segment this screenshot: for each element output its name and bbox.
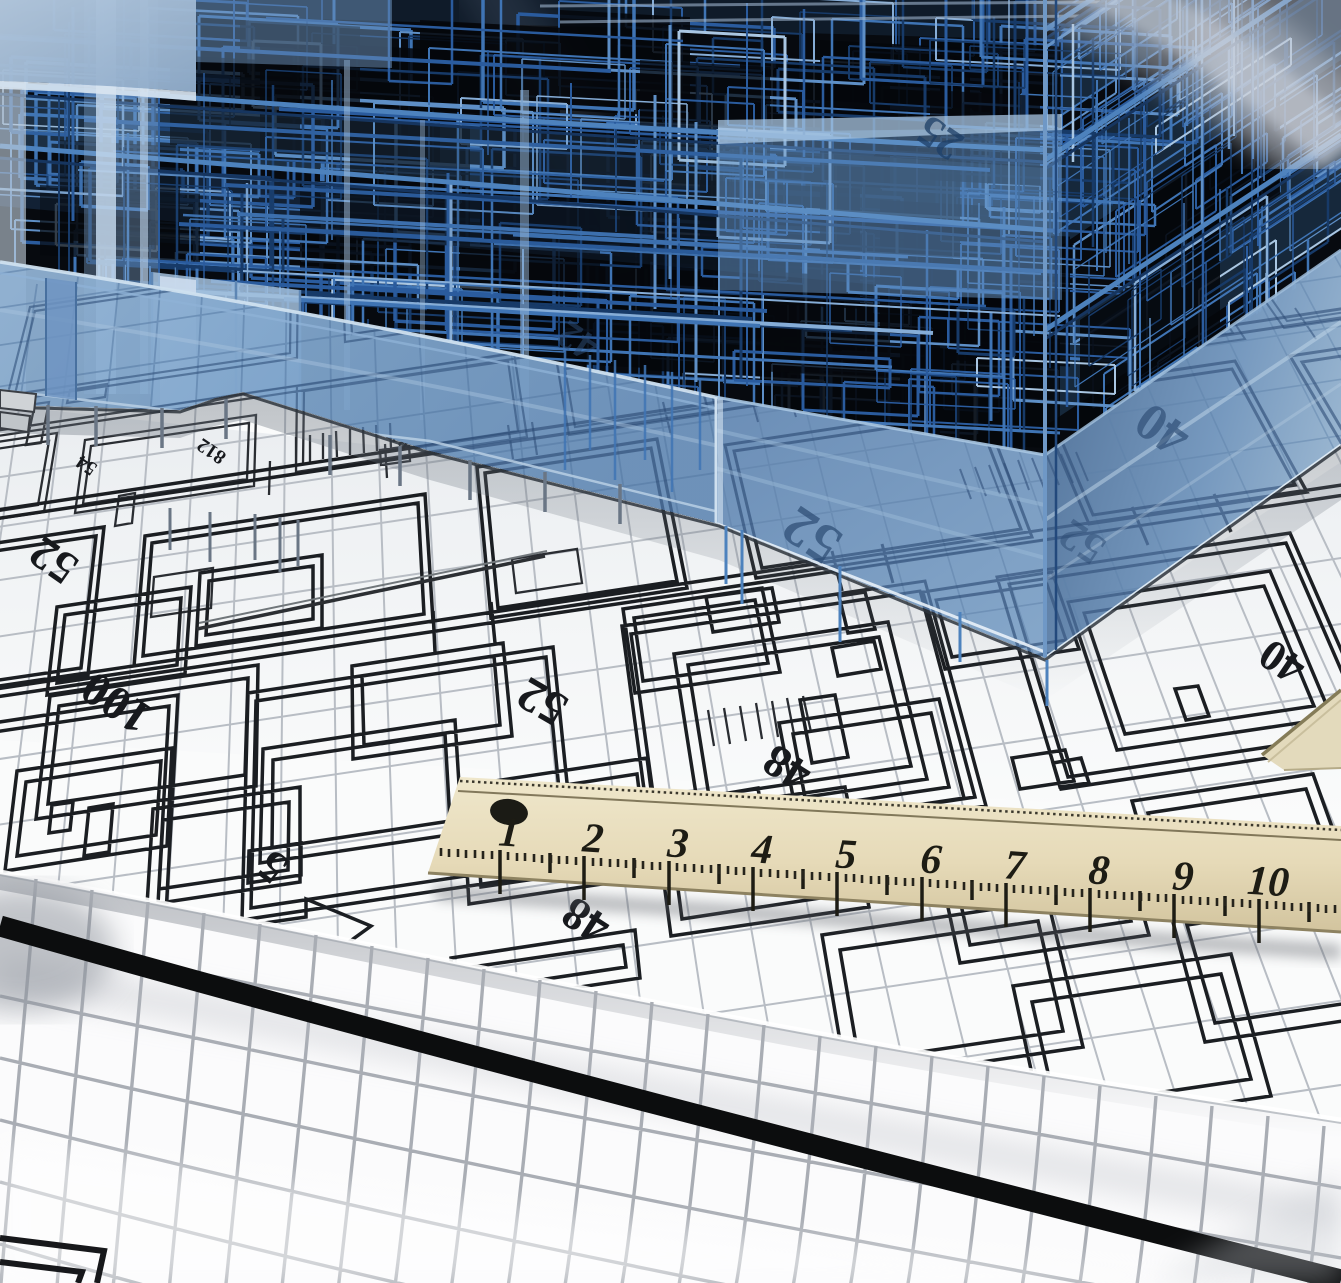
svg-text:10: 10 [1246, 858, 1291, 907]
svg-text:4: 4 [749, 826, 774, 873]
svg-text:8: 8 [1087, 847, 1111, 894]
svg-text:9: 9 [1171, 853, 1195, 900]
svg-text:6: 6 [919, 836, 943, 883]
svg-text:3: 3 [665, 820, 690, 867]
svg-text:5: 5 [834, 831, 858, 878]
svg-text:2: 2 [580, 815, 605, 862]
svg-text:1: 1 [497, 809, 521, 856]
